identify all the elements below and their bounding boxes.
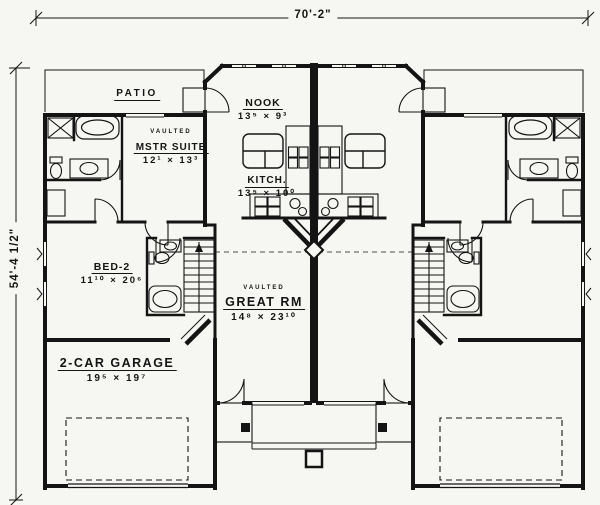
center-pier [306,451,322,467]
room-dims-great-room: 14⁸ × 23¹⁰ [223,312,305,324]
floor-plan-page: { "colors": { "background": "#f6f6f3", "… [0,0,600,505]
garage-door-opening [68,481,188,491]
floor-plan-drawing [0,0,600,505]
toilet [50,157,62,179]
porch [215,403,252,442]
unit-left [37,61,310,491]
linen-closet [47,190,65,216]
room-label-great-room: VAULTED GREAT RM 14⁸ × 23¹⁰ [223,285,305,324]
garage-entry-door-angled [181,315,210,344]
bathtub [76,116,119,139]
front-steps [252,443,376,449]
party-wall [310,63,318,403]
room-dims-bed2: 11¹⁰ × 20⁶ [81,276,144,287]
kitchen-island [243,134,283,168]
staircase [184,240,214,312]
room-dims-master-suite: 12¹ × 13³ [134,156,209,167]
room-label-patio: PATIO [114,83,160,101]
room-label-bed2: BED-2 11¹⁰ × 20⁶ [81,257,144,287]
room-label-kitchen: KITCH. 13⁵ × 10⁰ [238,170,296,200]
unit-right [318,61,591,491]
vanity-sink [70,159,108,178]
room-label-master-suite: VAULTED MSTR SUITE 12¹ × 13³ [134,129,209,167]
room-dims-nook: 13⁵ × 9³ [238,112,288,123]
shower [48,118,73,138]
room-prefix-master-suite: VAULTED [134,129,209,136]
room-label-nook: NOOK 13⁵ × 9³ [238,93,288,123]
room-label-garage: 2-CAR GARAGE 19⁵ × 19⁷ [58,354,177,385]
range-cooktop [289,147,309,168]
room-dims-garage: 19⁵ × 19⁷ [58,373,177,385]
garage-door-outline [66,418,188,480]
porch-post [241,423,250,432]
patio-closet [183,88,205,112]
dimension-label-height: 54'-4 1/2" [9,222,21,294]
room-dims-kitchen: 13⁵ × 10⁰ [238,189,296,200]
room-prefix-great-room: VAULTED [223,285,305,292]
dimension-label-width: 70'-2" [288,9,337,21]
